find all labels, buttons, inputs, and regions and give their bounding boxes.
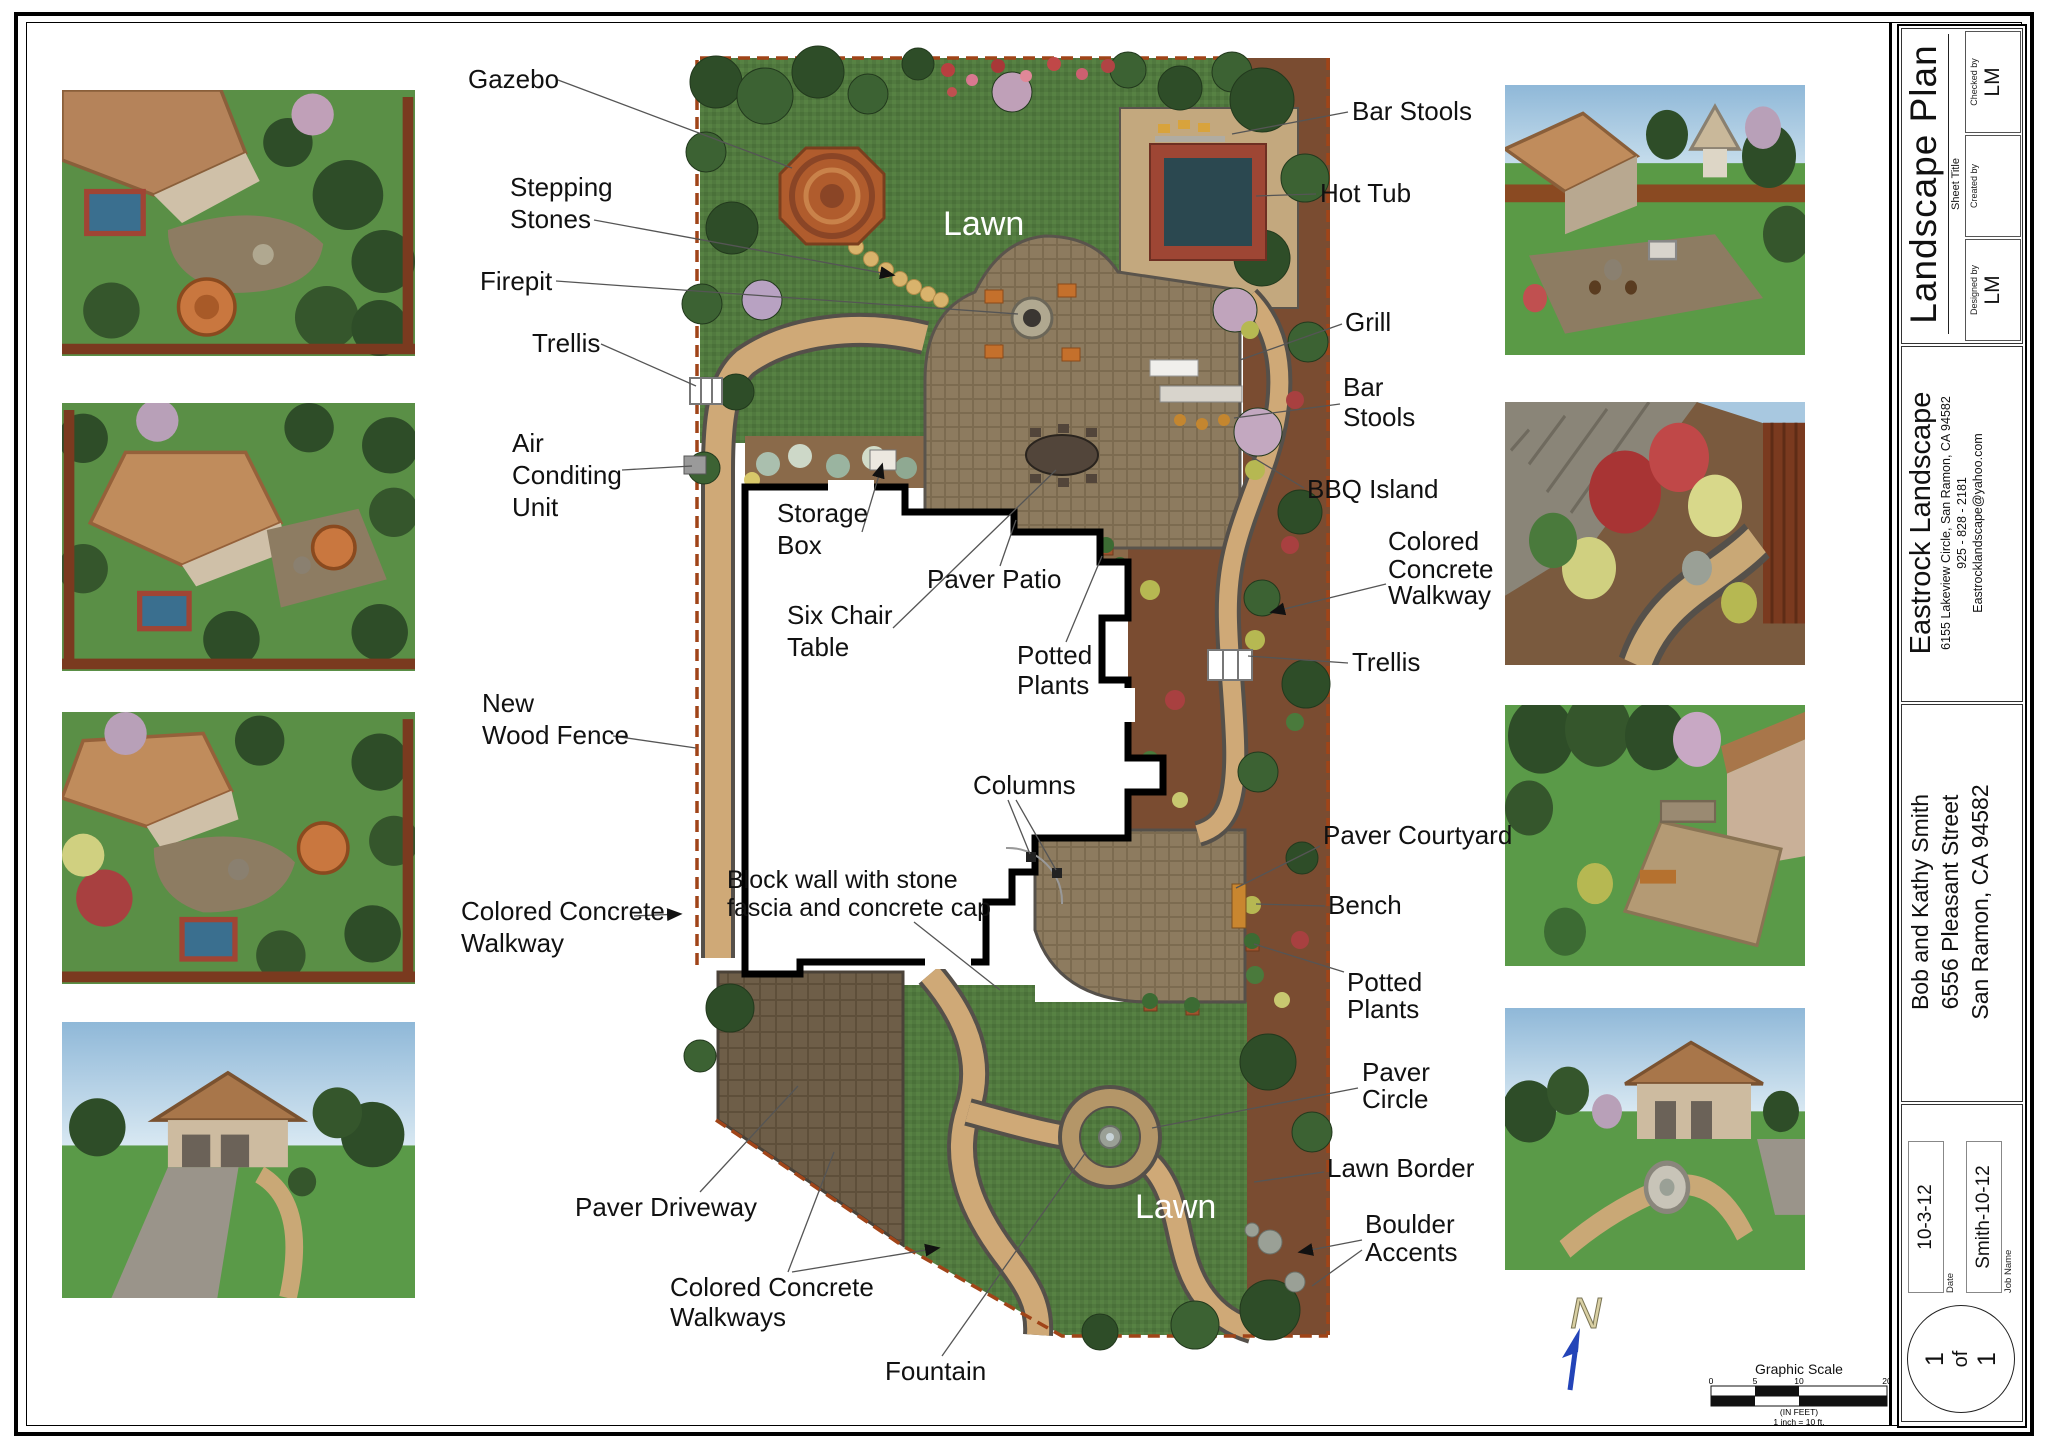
label-colored-concrete-walkways-bottom: Colored Concrete bbox=[670, 1272, 874, 1302]
checked-by-label: Checked by bbox=[1969, 36, 1979, 128]
grill-symbol bbox=[1150, 360, 1198, 376]
svg-text:(IN FEET): (IN FEET) bbox=[1780, 1407, 1818, 1417]
created-by-label: Created by bbox=[1969, 140, 1979, 232]
created-by-cell: Created by bbox=[1965, 135, 2021, 237]
company-phone: 925 - 828 - 2181 bbox=[1954, 351, 1970, 695]
label-bench: Bench bbox=[1328, 890, 1402, 920]
client-city: San Ramon, CA 94582 bbox=[1965, 709, 1995, 1095]
svg-text:fascia and concrete cap: fascia and concrete cap bbox=[727, 894, 991, 922]
meta-cell: 1 of 1 10-3-12 Date Smith-10-12 Job Name bbox=[1901, 1104, 2021, 1420]
north-letter: N bbox=[1570, 1289, 1602, 1338]
svg-text:Wood Fence: Wood Fence bbox=[482, 720, 629, 750]
svg-text:Stools: Stools bbox=[1343, 402, 1415, 432]
label-lawn-border: Lawn Border bbox=[1327, 1153, 1475, 1183]
svg-text:Unit: Unit bbox=[512, 492, 559, 522]
svg-text:Plants: Plants bbox=[1347, 994, 1419, 1024]
svg-text:Stones: Stones bbox=[510, 204, 591, 234]
bar-stool-symbol bbox=[1158, 124, 1170, 133]
label-potted-plants-center: Potted bbox=[1017, 640, 1092, 670]
storage-box-symbol bbox=[870, 450, 896, 470]
svg-text:0: 0 bbox=[1709, 1376, 1714, 1386]
six-chair-table-symbol bbox=[1026, 435, 1098, 475]
label-trellis-left: Trellis bbox=[532, 328, 600, 358]
designed-by-label: Designed by bbox=[1969, 244, 1979, 336]
label-gazebo: Gazebo bbox=[468, 64, 559, 94]
label-new-wood-fence: New bbox=[482, 688, 534, 718]
svg-text:1 inch = 10 ft.: 1 inch = 10 ft. bbox=[1773, 1417, 1824, 1427]
label-boulder-accents: Boulder bbox=[1365, 1209, 1455, 1239]
north-arrow: N bbox=[1562, 1289, 1602, 1390]
svg-text:Conditing: Conditing bbox=[512, 460, 622, 490]
titleblock-divider bbox=[1889, 22, 1892, 1426]
svg-text:Walkways: Walkways bbox=[670, 1302, 786, 1332]
checked-by-value: LM bbox=[1981, 36, 2005, 128]
job-name-label: Job Name bbox=[2003, 1141, 2014, 1293]
label-storage-box: Storage bbox=[777, 498, 868, 528]
label-bar-stools-2: Bar bbox=[1343, 372, 1384, 402]
label-firepit: Firepit bbox=[480, 266, 553, 296]
sheet-title-label: Sheet Title bbox=[1948, 34, 1962, 334]
column-symbol bbox=[1026, 852, 1036, 862]
label-grill: Grill bbox=[1345, 307, 1391, 337]
sheet-title-cell: Landscape Plan Sheet Title bbox=[1901, 30, 1963, 338]
svg-text:Walkway: Walkway bbox=[461, 928, 564, 958]
air-conditioning-symbol bbox=[684, 456, 706, 474]
checked-by-cell: Checked by LM bbox=[1965, 31, 2021, 133]
label-lawn-bottom: Lawn bbox=[1135, 1188, 1216, 1226]
company-cell: Eastrock Landscape 6155 Lakeview Circle,… bbox=[1901, 346, 2021, 700]
page-first: 1 bbox=[1922, 1352, 1948, 1366]
label-columns: Columns bbox=[973, 770, 1076, 800]
client-street: 6556 Pleasant Street bbox=[1935, 709, 1965, 1095]
label-air-conditioning: Air bbox=[512, 428, 544, 458]
svg-text:5: 5 bbox=[1753, 1376, 1758, 1386]
landscape-plan-sheet: Gazebo Stepping Stones Firepit Trellis A… bbox=[0, 0, 2048, 1448]
svg-text:Accents: Accents bbox=[1365, 1237, 1458, 1267]
gazebo-symbol bbox=[780, 148, 884, 244]
label-paver-circle: Paver bbox=[1362, 1057, 1430, 1087]
graphic-scale: Graphic Scale 0 5 10 20 (IN FEET) 1 inch… bbox=[1709, 1361, 1892, 1427]
label-potted-plants-right: Potted bbox=[1347, 967, 1422, 997]
label-colored-concrete-walkway-left: Colored Concrete bbox=[461, 896, 665, 926]
job-name-field: Smith-10-12 bbox=[1966, 1141, 2002, 1293]
label-bbq-island: BBQ Island bbox=[1307, 474, 1439, 504]
label-stepping-stones: Stepping bbox=[510, 172, 613, 202]
label-hot-tub: Hot Tub bbox=[1320, 178, 1411, 208]
label-trellis-right: Trellis bbox=[1352, 647, 1420, 677]
label-fountain: Fountain bbox=[885, 1356, 986, 1386]
designed-by-value: LM bbox=[1981, 244, 2005, 336]
label-paver-courtyard: Paver Courtyard bbox=[1323, 820, 1512, 850]
client-cell: Bob and Kathy Smith 6556 Pleasant Street… bbox=[1901, 704, 2021, 1100]
page-number-circle: 1 of 1 bbox=[1907, 1305, 2015, 1413]
designed-by-cell: Designed by LM bbox=[1965, 239, 2021, 341]
graphic-scale-title: Graphic Scale bbox=[1755, 1361, 1843, 1377]
svg-text:Walkway: Walkway bbox=[1388, 580, 1491, 610]
svg-text:Plants: Plants bbox=[1017, 670, 1089, 700]
svg-text:Table: Table bbox=[787, 632, 849, 662]
boulder-symbol bbox=[1258, 1230, 1282, 1254]
label-lawn-top: Lawn bbox=[943, 205, 1024, 243]
label-paver-patio: Paver Patio bbox=[927, 564, 1061, 594]
sheet-title: Landscape Plan bbox=[1903, 34, 1945, 334]
label-bar-stools-top: Bar Stools bbox=[1352, 96, 1472, 126]
svg-text:Box: Box bbox=[777, 530, 822, 560]
label-colored-concrete-walkway-right: Colored bbox=[1388, 526, 1479, 556]
date-label: Date bbox=[1945, 1141, 1956, 1293]
bench-symbol bbox=[1232, 884, 1246, 928]
label-paver-driveway: Paver Driveway bbox=[575, 1192, 757, 1222]
plan-drawing: Gazebo Stepping Stones Firepit Trellis A… bbox=[0, 0, 2048, 1448]
svg-text:10: 10 bbox=[1794, 1376, 1804, 1386]
page-last: 1 bbox=[1974, 1352, 2000, 1366]
company-address: 6155 Lakeview Circle, San Ramon, CA 9458… bbox=[1938, 351, 1954, 695]
company-name: Eastrock Landscape bbox=[1905, 351, 1938, 695]
paver-circle-symbol bbox=[1060, 1087, 1160, 1187]
label-block-wall: Block wall with stone bbox=[727, 866, 958, 894]
label-six-chair-table: Six Chair bbox=[787, 600, 893, 630]
client-name: Bob and Kathy Smith bbox=[1905, 709, 1935, 1095]
company-email: Eastrocklandscape@yahoo.com bbox=[1970, 351, 1986, 695]
bbq-island-symbol bbox=[1160, 386, 1242, 402]
date-field: 10-3-12 bbox=[1908, 1141, 1944, 1293]
page-of: of bbox=[1948, 1351, 1974, 1368]
svg-text:Circle: Circle bbox=[1362, 1084, 1428, 1114]
